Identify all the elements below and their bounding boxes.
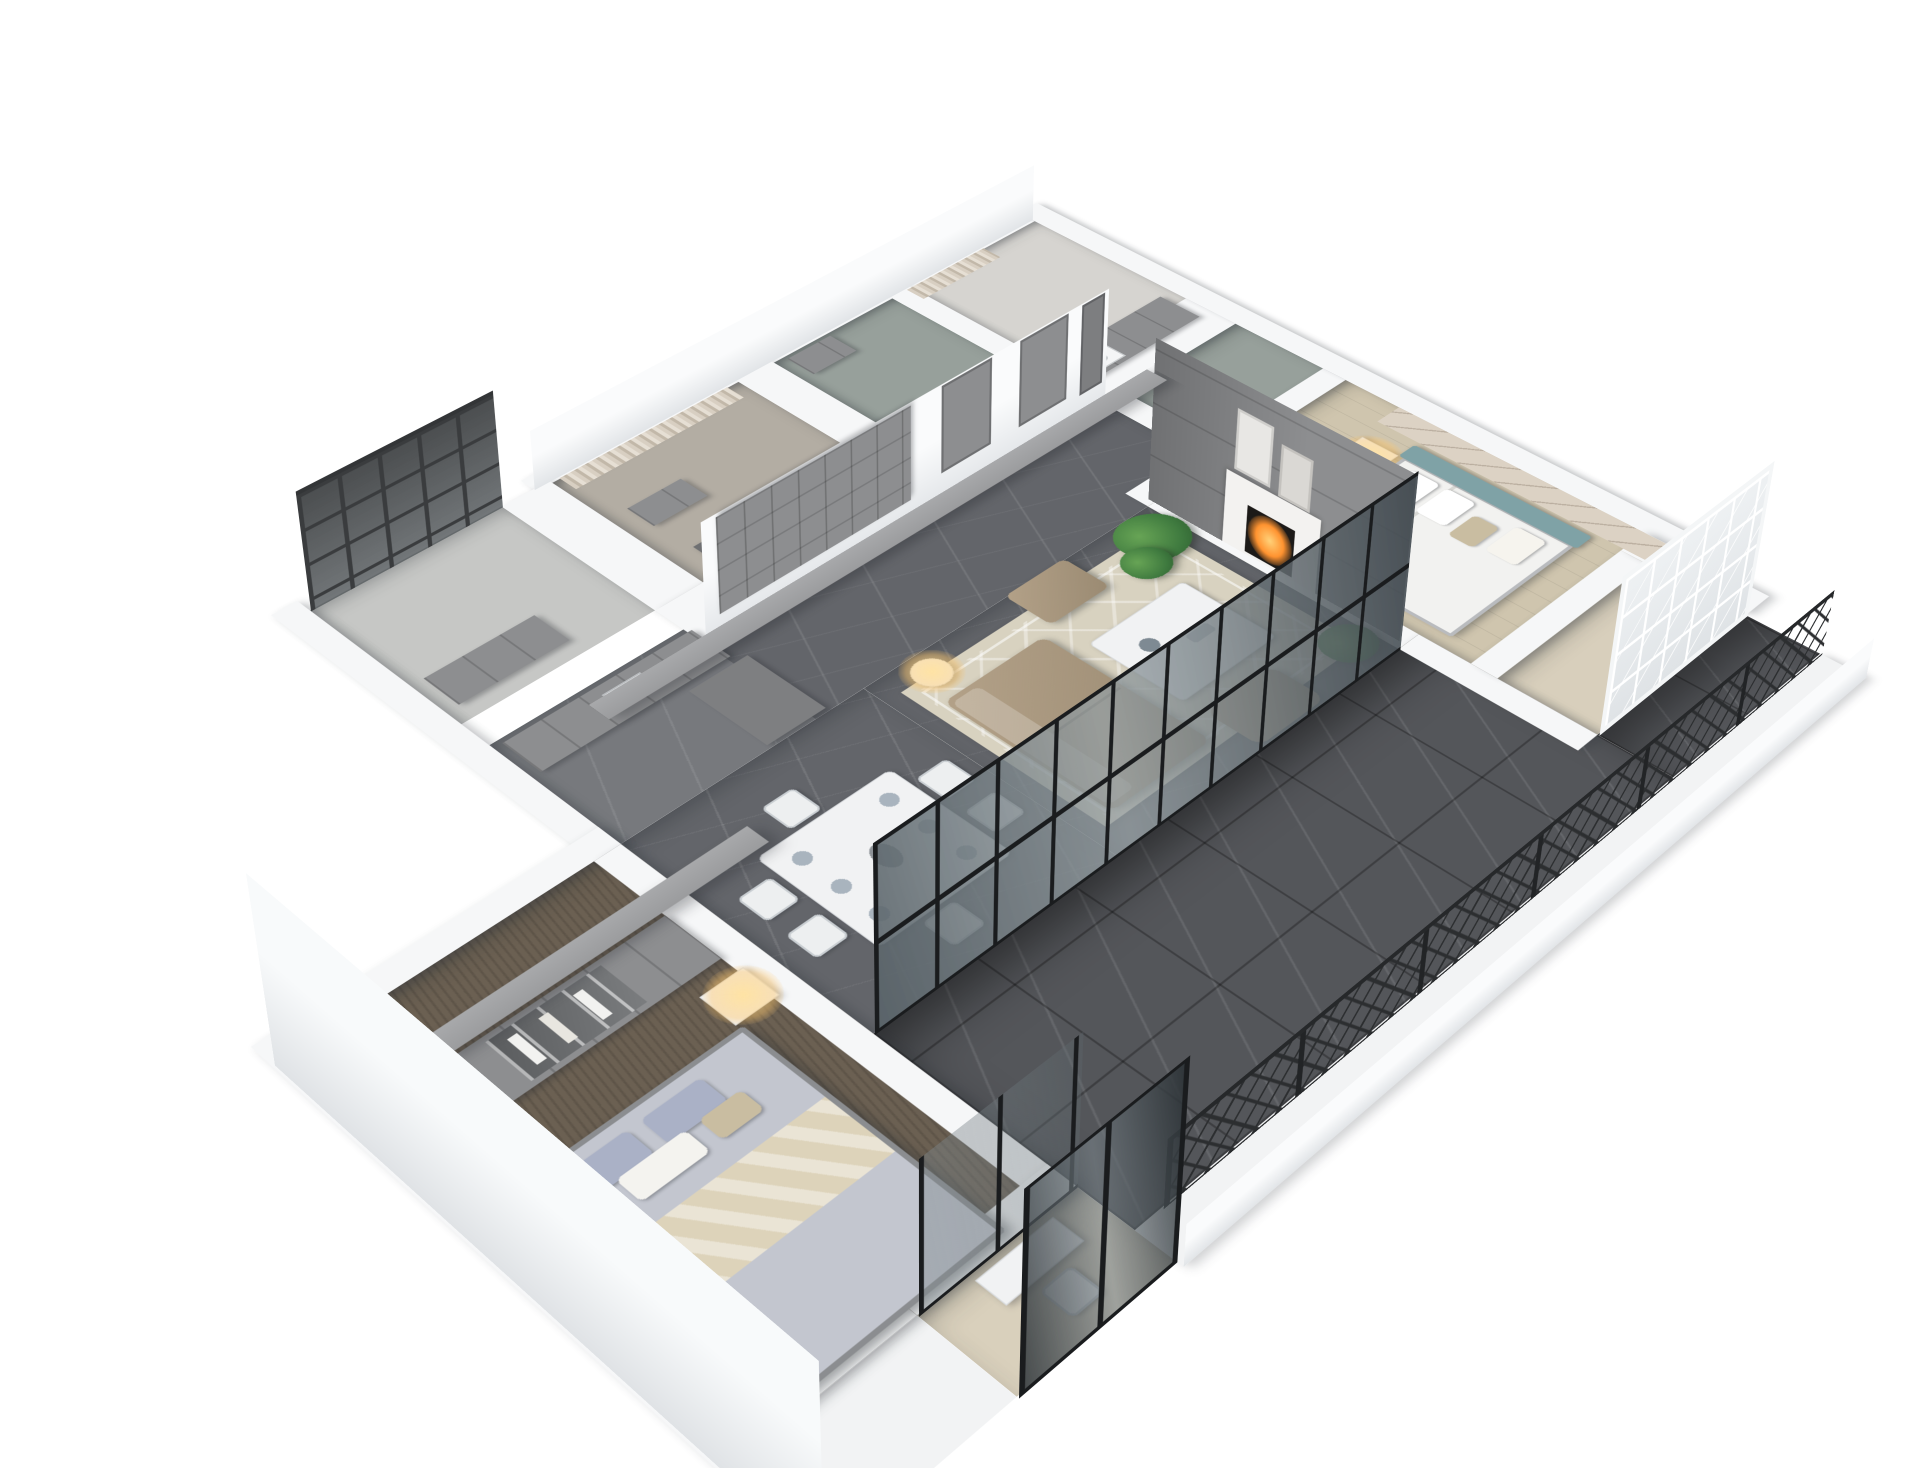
floorplan-render xyxy=(0,0,1920,1468)
scene-root xyxy=(0,206,1893,1468)
master-pillow-blue xyxy=(640,1078,729,1145)
hanging-clothes xyxy=(507,1033,547,1065)
plate xyxy=(788,848,818,869)
hanging-clothes xyxy=(573,989,613,1020)
guest-pillow xyxy=(1485,526,1547,565)
master-pillow-white xyxy=(616,1130,711,1202)
entry-door xyxy=(1079,292,1105,395)
